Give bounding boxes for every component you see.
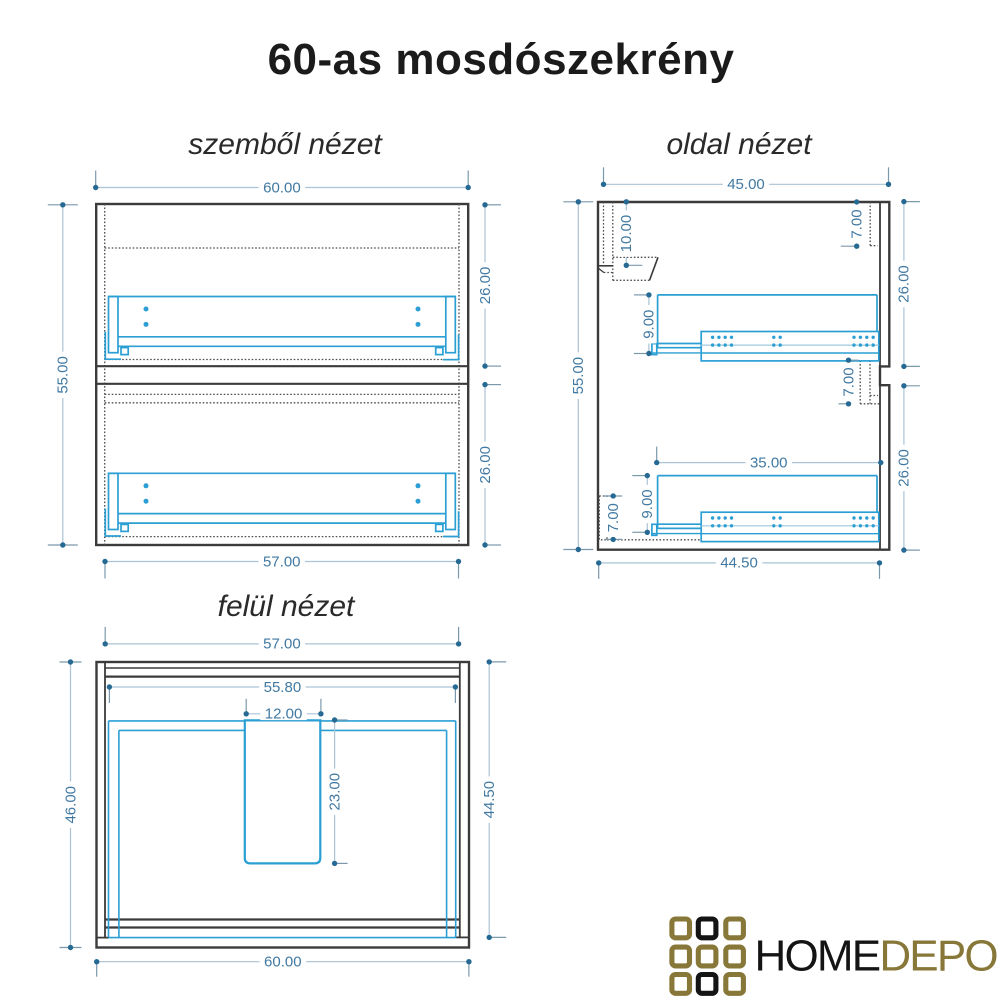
svg-text:45.00: 45.00 (727, 176, 765, 193)
svg-text:60.00: 60.00 (263, 179, 301, 196)
svg-text:felül nézet: felül nézet (218, 590, 356, 623)
svg-text:szemből nézet: szemből nézet (188, 128, 383, 161)
svg-text:HOMEDEPO: HOMEDEPO (755, 932, 998, 981)
svg-text:26.00: 26.00 (896, 449, 913, 487)
svg-text:46.00: 46.00 (62, 786, 79, 824)
svg-text:7.00: 7.00 (849, 209, 866, 238)
svg-text:12.00: 12.00 (265, 706, 303, 723)
svg-text:35.00: 35.00 (750, 454, 788, 471)
svg-text:oldal nézet: oldal nézet (666, 128, 813, 161)
svg-text:10.00: 10.00 (618, 215, 635, 253)
svg-text:7.00: 7.00 (840, 367, 857, 396)
svg-text:26.00: 26.00 (896, 265, 913, 303)
svg-text:26.00: 26.00 (477, 446, 494, 484)
svg-text:23.00: 23.00 (326, 773, 343, 811)
svg-text:57.00: 57.00 (263, 636, 301, 653)
svg-text:26.00: 26.00 (477, 267, 494, 305)
svg-text:55.00: 55.00 (55, 356, 72, 394)
svg-text:7.00: 7.00 (605, 503, 622, 532)
svg-text:44.50: 44.50 (481, 781, 498, 819)
svg-text:60.00: 60.00 (264, 954, 302, 971)
svg-text:57.00: 57.00 (263, 553, 301, 570)
svg-text:44.50: 44.50 (720, 555, 758, 572)
svg-text:9.00: 9.00 (641, 310, 658, 339)
svg-text:60-as mosdószekrény: 60-as mosdószekrény (268, 35, 735, 84)
svg-text:9.00: 9.00 (639, 489, 656, 518)
svg-text:55.80: 55.80 (264, 679, 302, 696)
svg-text:55.00: 55.00 (570, 357, 587, 395)
